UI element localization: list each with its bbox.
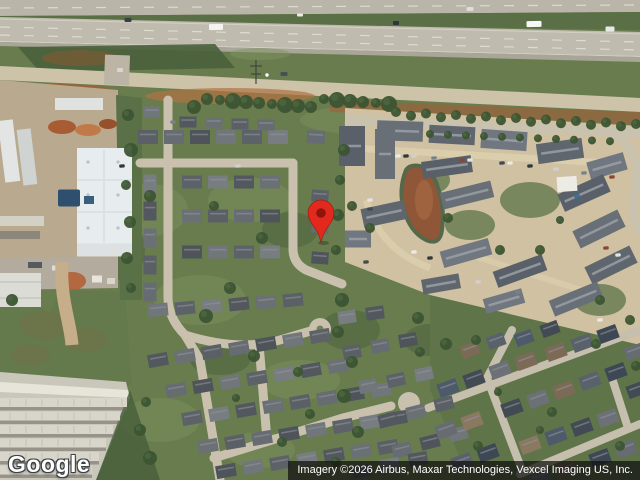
google-logo[interactable]: Google — [8, 453, 90, 476]
pin-dot — [316, 208, 326, 218]
attribution-text: Imagery ©2026 Airbus, Maxar Technologies… — [297, 464, 633, 476]
satellite-map-canvas[interactable]: Google Imagery ©2026 Airbus, Maxar Techn… — [0, 0, 640, 480]
pin-shadow — [318, 241, 329, 245]
satellite-imagery — [0, 0, 640, 480]
attribution-bar: Imagery ©2026 Airbus, Maxar Technologies… — [288, 461, 640, 480]
